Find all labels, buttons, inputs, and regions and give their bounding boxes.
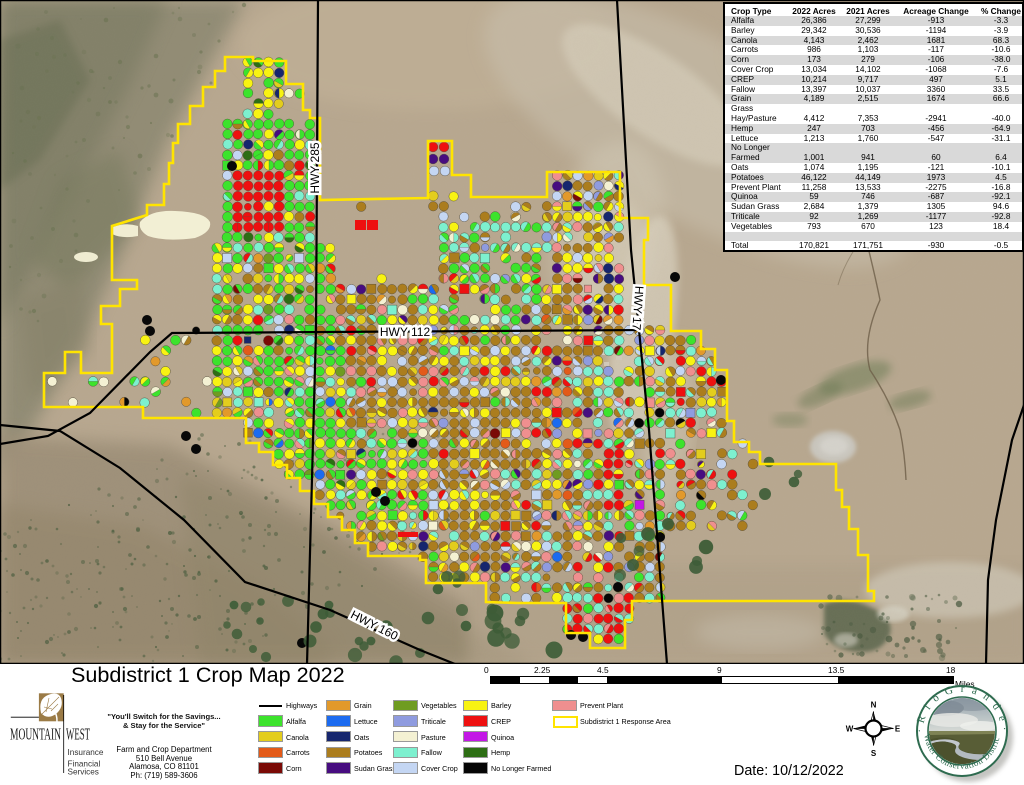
- svg-text:HWY 285: HWY 285: [308, 142, 322, 193]
- svg-text:W: W: [846, 725, 854, 734]
- svg-text:S: S: [871, 749, 877, 758]
- svg-text:E: E: [895, 725, 901, 734]
- svg-text:N: N: [871, 701, 877, 710]
- svg-text:Services: Services: [68, 768, 99, 777]
- svg-text:WEST: WEST: [66, 725, 90, 744]
- svg-text:MOUNTAIN: MOUNTAIN: [10, 725, 61, 744]
- svg-text:HWY 112: HWY 112: [380, 325, 431, 339]
